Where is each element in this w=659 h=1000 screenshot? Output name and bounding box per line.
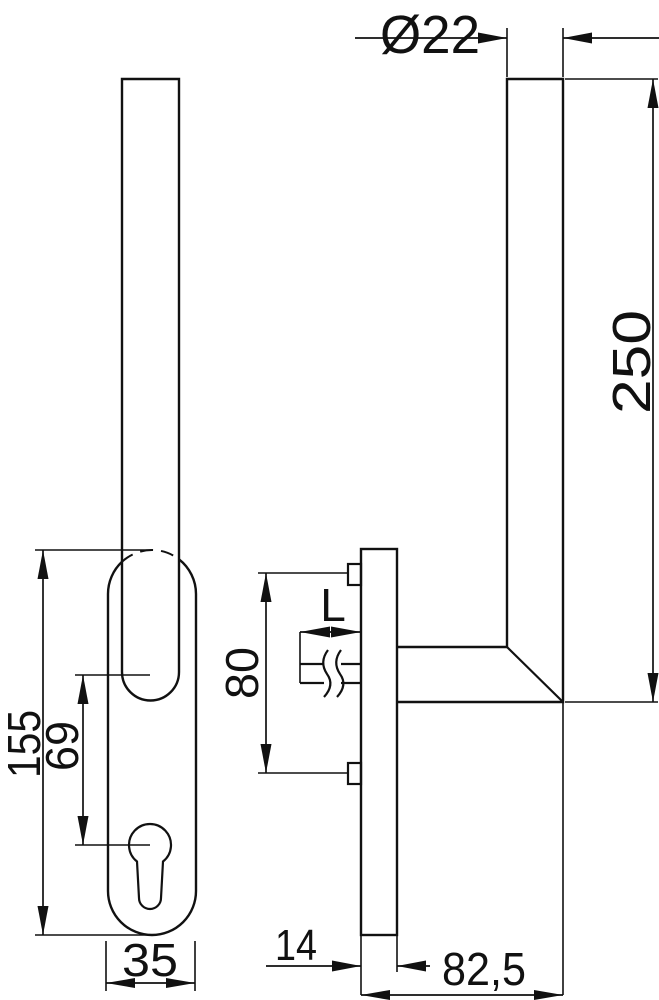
arrowhead-left bbox=[397, 961, 426, 972]
arrowhead-right bbox=[534, 990, 563, 1000]
arrowhead-right bbox=[478, 33, 507, 44]
plate-hidden-arc bbox=[122, 550, 179, 562]
dim-axis-to-cylinder: 69 bbox=[36, 675, 150, 845]
arrowhead-down bbox=[648, 673, 659, 702]
arrowhead-down bbox=[38, 906, 49, 935]
tube-outline bbox=[397, 79, 563, 702]
screw-head-top bbox=[348, 564, 361, 585]
spindle bbox=[300, 650, 361, 697]
arrowhead-down bbox=[78, 816, 89, 845]
side-view: Ø22 250 80 L bbox=[216, 5, 659, 1000]
dim-plate-width-label: 35 bbox=[122, 934, 178, 986]
front-view: 155 69 35 bbox=[0, 79, 196, 991]
dim-plate-thickness-label: 14 bbox=[275, 921, 317, 970]
dim-spindle-length-label: L bbox=[320, 579, 346, 631]
handle-technical-drawing: 155 69 35 bbox=[0, 0, 659, 1000]
dim-screw-spacing-label: 80 bbox=[216, 647, 268, 699]
grip-bar-outline bbox=[122, 79, 179, 701]
dim-spindle-length: L bbox=[300, 579, 361, 683]
arrowhead-down bbox=[261, 744, 272, 773]
screw-head-bottom bbox=[348, 763, 361, 784]
dim-handle-height-label: 250 bbox=[602, 310, 659, 414]
euro-cylinder-keyhole bbox=[129, 824, 171, 909]
arrowhead-up bbox=[648, 79, 659, 108]
dim-projection-label: 82,5 bbox=[442, 943, 526, 995]
dim-tube-diameter: Ø22 bbox=[355, 5, 659, 77]
technical-drawing-page: 155 69 35 bbox=[0, 0, 659, 1000]
arrowhead-up bbox=[38, 550, 49, 579]
dim-axis-to-cylinder-label: 69 bbox=[36, 721, 88, 771]
arrowhead-left bbox=[361, 990, 390, 1000]
break-symbol-line bbox=[323, 650, 330, 697]
arrowhead-up bbox=[261, 573, 272, 602]
dim-tube-diameter-label: Ø22 bbox=[380, 5, 480, 65]
dim-plate-width: 35 bbox=[106, 934, 195, 991]
break-symbol-line bbox=[336, 650, 343, 697]
dim-plate-thickness: 14 bbox=[266, 921, 430, 995]
arrowhead-up bbox=[78, 675, 89, 704]
arrowhead-right bbox=[332, 961, 361, 972]
plate-side-profile bbox=[361, 549, 397, 935]
dim-handle-height: 250 bbox=[565, 79, 659, 702]
dim-projection: 82,5 bbox=[361, 702, 563, 1000]
arrowhead-left bbox=[563, 33, 592, 44]
bend-miter-line bbox=[507, 647, 563, 702]
